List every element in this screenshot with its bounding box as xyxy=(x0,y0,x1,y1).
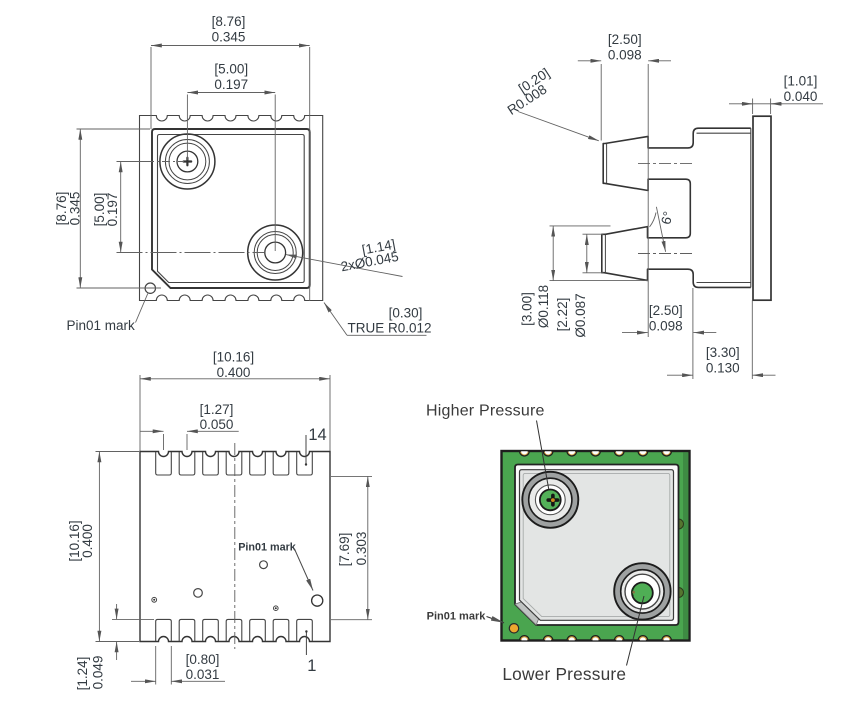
svg-text:0.197: 0.197 xyxy=(105,193,120,227)
svg-text:[1.27]: [1.27] xyxy=(200,402,234,417)
svg-text:Pin01 mark: Pin01 mark xyxy=(67,318,136,333)
svg-text:[5.00]: [5.00] xyxy=(214,62,248,77)
svg-text:0.031: 0.031 xyxy=(186,667,220,682)
svg-text:Lower Pressure: Lower Pressure xyxy=(502,664,626,684)
svg-text:Higher Pressure: Higher Pressure xyxy=(426,403,545,420)
svg-text:[0.30]: [0.30] xyxy=(389,306,423,321)
svg-text:[2.50]: [2.50] xyxy=(608,32,642,47)
svg-text:[2.50]: [2.50] xyxy=(649,303,683,318)
svg-text:TRUE R0.012: TRUE R0.012 xyxy=(347,321,431,336)
svg-text:0.130: 0.130 xyxy=(706,361,740,376)
svg-text:[1.01]: [1.01] xyxy=(784,74,818,89)
svg-text:14: 14 xyxy=(308,426,326,444)
svg-text:0.049: 0.049 xyxy=(90,656,105,690)
svg-text:[3.00]: [3.00] xyxy=(520,292,535,326)
svg-text:[7.69]: [7.69] xyxy=(337,533,352,567)
svg-text:[0.80]: [0.80] xyxy=(186,652,220,667)
svg-text:0.400: 0.400 xyxy=(217,365,251,380)
svg-text:[3.30]: [3.30] xyxy=(706,345,740,360)
svg-text:0.303: 0.303 xyxy=(354,532,369,566)
svg-text:0.400: 0.400 xyxy=(80,524,95,558)
svg-text:Ø0.118: Ø0.118 xyxy=(536,285,551,328)
svg-text:[1.24]: [1.24] xyxy=(75,657,90,691)
svg-text:Ø0.087: Ø0.087 xyxy=(573,293,588,337)
svg-text:0.197: 0.197 xyxy=(214,77,248,92)
svg-text:0.098: 0.098 xyxy=(649,319,683,334)
svg-text:Pin01 mark: Pin01 mark xyxy=(238,542,297,554)
svg-text:0.050: 0.050 xyxy=(200,417,234,432)
svg-text:0.098: 0.098 xyxy=(608,48,642,63)
svg-text:[2.22]: [2.22] xyxy=(555,298,570,332)
svg-text:0.345: 0.345 xyxy=(212,30,246,45)
svg-text:0.345: 0.345 xyxy=(68,192,83,226)
svg-text:1: 1 xyxy=(307,657,316,675)
svg-text:Pin01 mark: Pin01 mark xyxy=(427,611,487,623)
svg-text:[10.16]: [10.16] xyxy=(213,350,254,365)
svg-text:[8.76]: [8.76] xyxy=(212,14,246,29)
svg-text:0.040: 0.040 xyxy=(784,89,818,104)
